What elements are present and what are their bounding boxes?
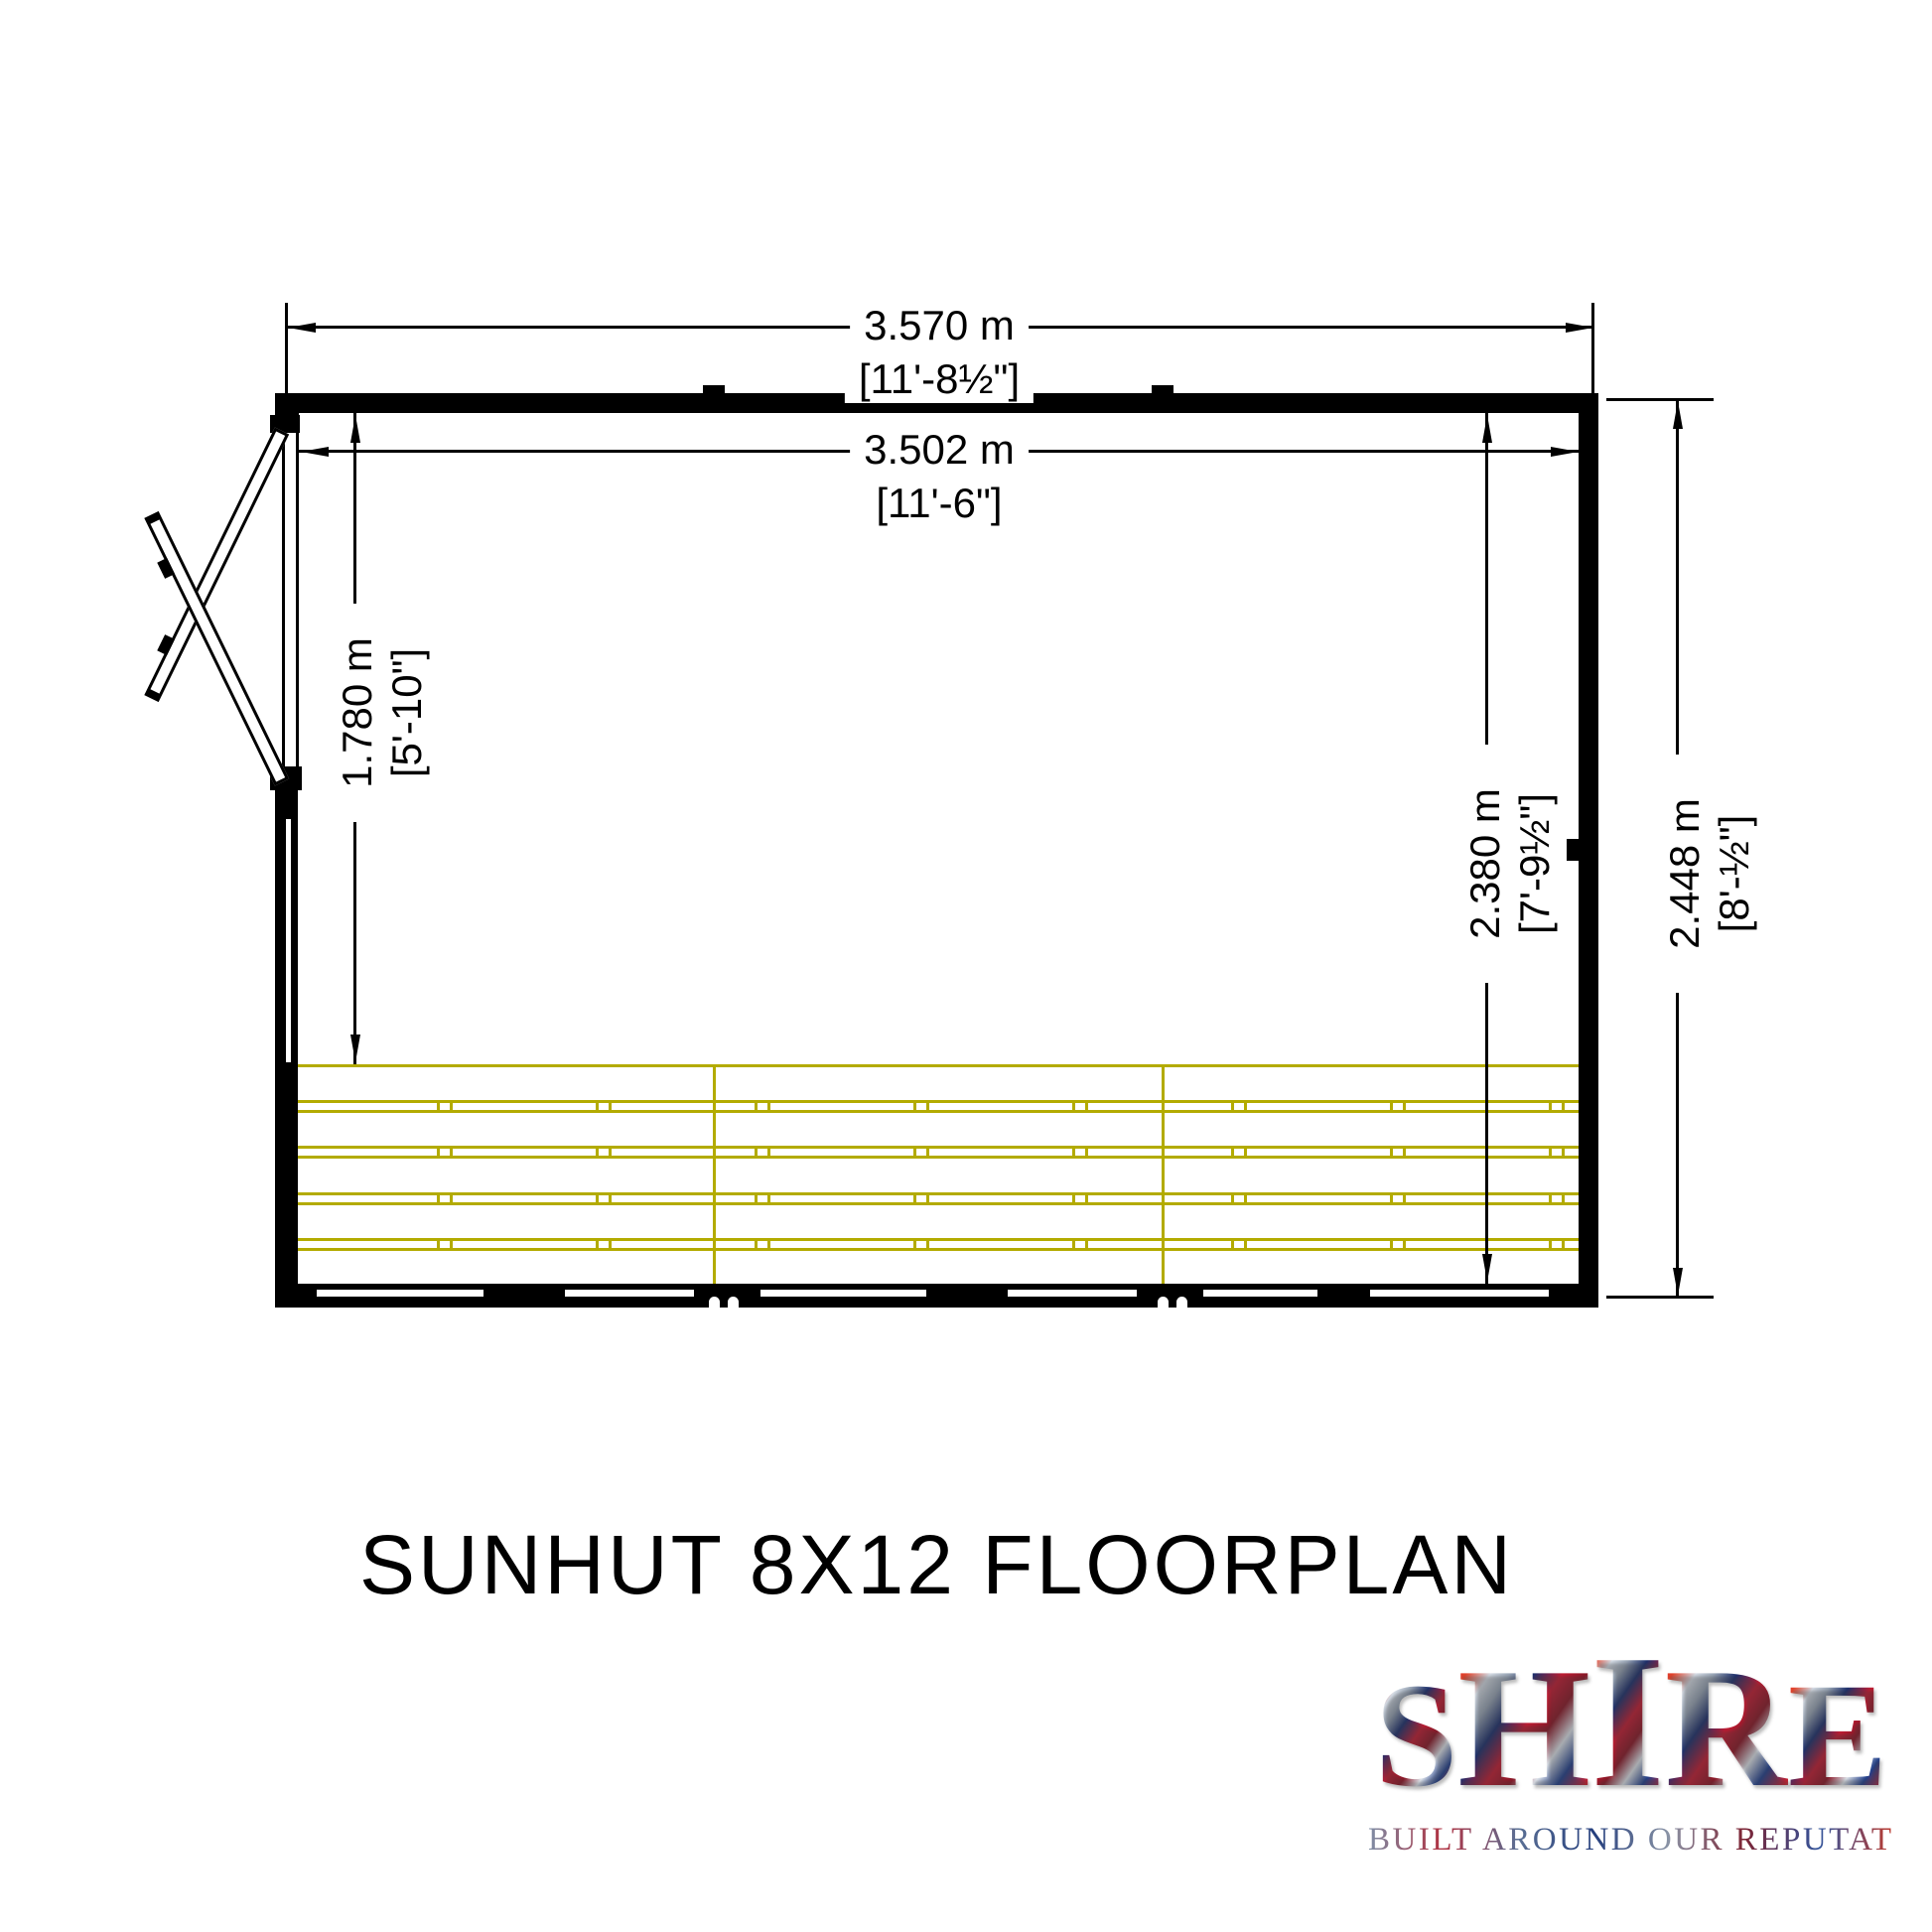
arrowhead-icon	[1566, 323, 1593, 333]
door-lock-block	[157, 634, 175, 655]
wall-bottom-joint-notch	[1158, 1297, 1169, 1308]
staging-section-divider	[1162, 1064, 1165, 1284]
arrowhead-icon	[1673, 1268, 1683, 1296]
dim-internal-depth-imperial: [7'-9½"]	[1510, 793, 1560, 934]
logo-letter: E	[1788, 1669, 1887, 1803]
extension-line	[1591, 303, 1594, 393]
dim-door-opening-label: 1.780 m [5'-10"]	[333, 604, 432, 822]
staging-slat-row	[298, 1238, 1579, 1251]
dim-door-opening-metric: 1.780 m	[333, 637, 382, 788]
logo-letter: I	[1590, 1636, 1665, 1808]
arrowhead-icon	[1673, 401, 1683, 429]
arrowhead-icon	[350, 415, 360, 443]
wall-bottom-panel-slot	[565, 1290, 694, 1297]
staging-slat-row	[298, 1146, 1579, 1159]
logo-tagline: BUILT AROUND OUR REPUTATION	[1368, 1822, 1894, 1859]
arrowhead-icon	[288, 323, 316, 333]
shire-logo: S H I R E BUILT AROUND OUR REPUTATION	[1368, 1636, 1894, 1859]
staging-slat-row	[298, 1100, 1579, 1113]
dim-overall-depth-metric: 2.448 m	[1660, 798, 1710, 949]
extension-line	[1606, 398, 1714, 401]
dim-door-opening-imperial: [5'-10"]	[382, 648, 432, 777]
dim-internal-width-imperial: [11'-6"]	[862, 480, 1016, 527]
arrowhead-icon	[350, 1035, 360, 1062]
wall-bottom-joint-notch	[709, 1297, 720, 1308]
door-threshold-line	[282, 429, 285, 782]
dim-overall-width-imperial: [11'-8½"]	[845, 355, 1034, 403]
dim-overall-depth-imperial: [8'-½"]	[1710, 815, 1759, 933]
wall-bottom-panel-slot	[760, 1290, 926, 1297]
floorplan-canvas: 3.570 m [11'-8½"] 3.502 m [11'-6"] 1.780…	[0, 0, 1932, 1932]
dim-overall-width-metric: 3.570 m	[850, 302, 1029, 349]
wall-bottom-panel-slot	[1370, 1290, 1549, 1297]
extension-line	[1606, 1296, 1714, 1299]
arrowhead-icon	[1551, 447, 1579, 457]
wall-bottom-joint-notch	[1176, 1297, 1187, 1308]
staging-section-divider	[713, 1064, 716, 1284]
wall-bottom-panel-slot	[1203, 1290, 1317, 1297]
arrowhead-icon	[301, 447, 329, 457]
roof-joint-marker-right	[1152, 385, 1173, 393]
wall-bottom-panel-slot	[1008, 1290, 1137, 1297]
dim-internal-depth-label: 2.380 m [7'-9½"]	[1457, 745, 1563, 983]
wall-right-stud	[1567, 839, 1579, 861]
roof-joint-marker-left	[703, 385, 725, 393]
door-threshold-line	[296, 429, 299, 782]
page-title: SUNHUT 8X12 FLOORPLAN	[275, 1517, 1598, 1613]
wall-bottom-joint-notch	[728, 1297, 739, 1308]
dim-internal-width-metric: 3.502 m	[850, 426, 1029, 474]
staging-front-edge	[298, 1064, 1579, 1067]
arrowhead-icon	[1482, 1254, 1492, 1282]
logo-letter: S	[1375, 1669, 1457, 1803]
dim-internal-depth-metric: 2.380 m	[1460, 788, 1510, 939]
logo-letter: H	[1457, 1652, 1590, 1806]
dim-overall-depth-label: 2.448 m [8'-½"]	[1657, 755, 1762, 993]
extension-line	[285, 303, 288, 427]
door-lock-block	[157, 558, 175, 579]
wall-right	[1579, 393, 1598, 1304]
logo-letter: R	[1665, 1652, 1788, 1806]
shire-logo-wordmark: S H I R E	[1368, 1636, 1894, 1808]
staging-slat-row	[298, 1192, 1579, 1205]
wall-bottom-panel-slot	[317, 1290, 483, 1297]
arrowhead-icon	[1482, 415, 1492, 443]
wall-left-panel-slot	[286, 819, 291, 1062]
